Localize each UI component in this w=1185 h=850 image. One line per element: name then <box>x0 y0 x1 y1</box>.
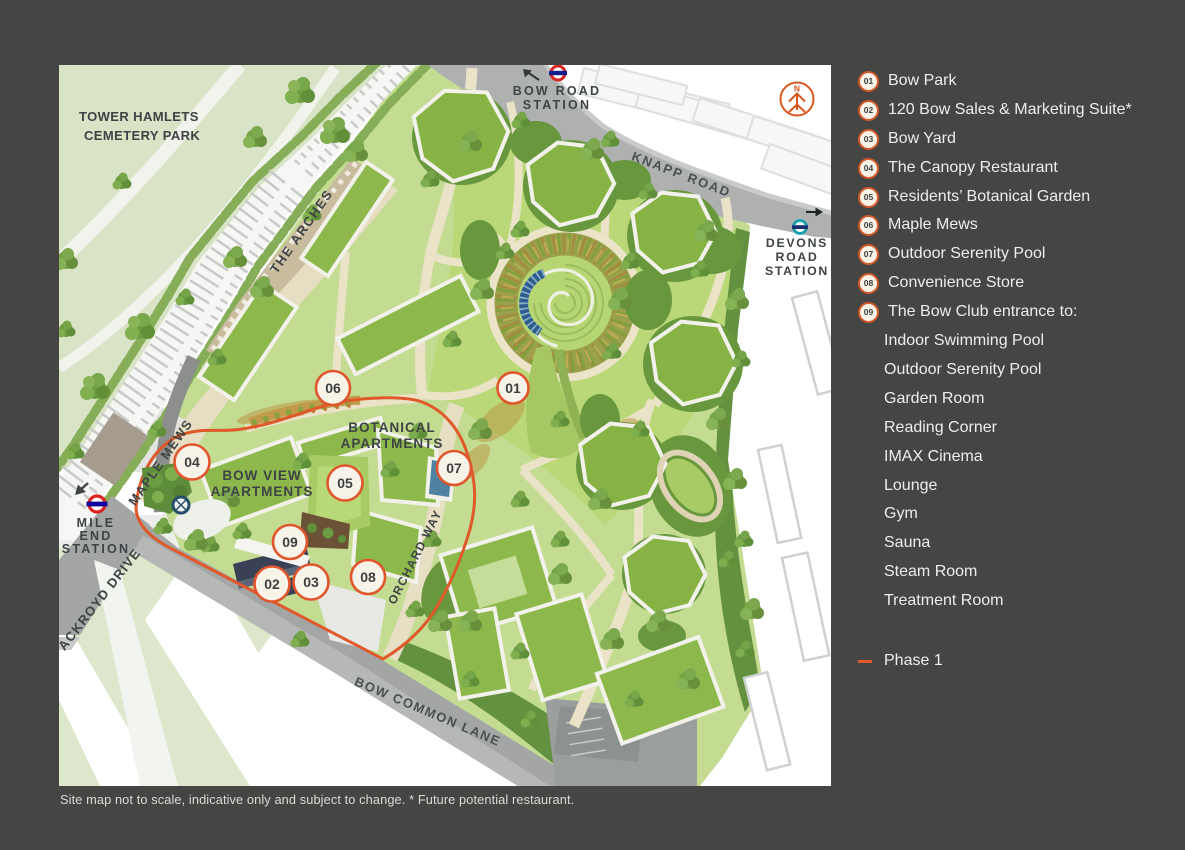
svg-text:02: 02 <box>264 576 280 592</box>
svg-text:APARTMENTS: APARTMENTS <box>211 484 314 499</box>
svg-text:APARTMENTS: APARTMENTS <box>341 436 444 451</box>
svg-text:05: 05 <box>337 475 353 491</box>
svg-text:BOW ROAD: BOW ROAD <box>513 84 601 98</box>
svg-text:STATION: STATION <box>523 98 591 112</box>
svg-text:ROAD: ROAD <box>775 250 818 264</box>
svg-text:N: N <box>794 84 800 94</box>
svg-text:07: 07 <box>446 460 462 476</box>
svg-text:BOTANICAL: BOTANICAL <box>348 420 436 435</box>
svg-text:08: 08 <box>360 569 376 585</box>
svg-text:01: 01 <box>505 380 521 396</box>
svg-text:TOWER HAMLETS: TOWER HAMLETS <box>79 109 199 124</box>
svg-text:04: 04 <box>184 454 200 470</box>
svg-text:09: 09 <box>282 534 298 550</box>
svg-text:STATION: STATION <box>765 264 829 278</box>
svg-text:MILE: MILE <box>77 516 116 530</box>
svg-text:03: 03 <box>303 574 319 590</box>
svg-text:DEVONS: DEVONS <box>766 236 828 250</box>
svg-text:STATION: STATION <box>62 542 130 556</box>
svg-text:CEMETERY PARK: CEMETERY PARK <box>84 128 200 143</box>
svg-text:06: 06 <box>325 380 341 396</box>
svg-text:END: END <box>80 529 113 543</box>
svg-text:BOW VIEW: BOW VIEW <box>222 468 301 483</box>
